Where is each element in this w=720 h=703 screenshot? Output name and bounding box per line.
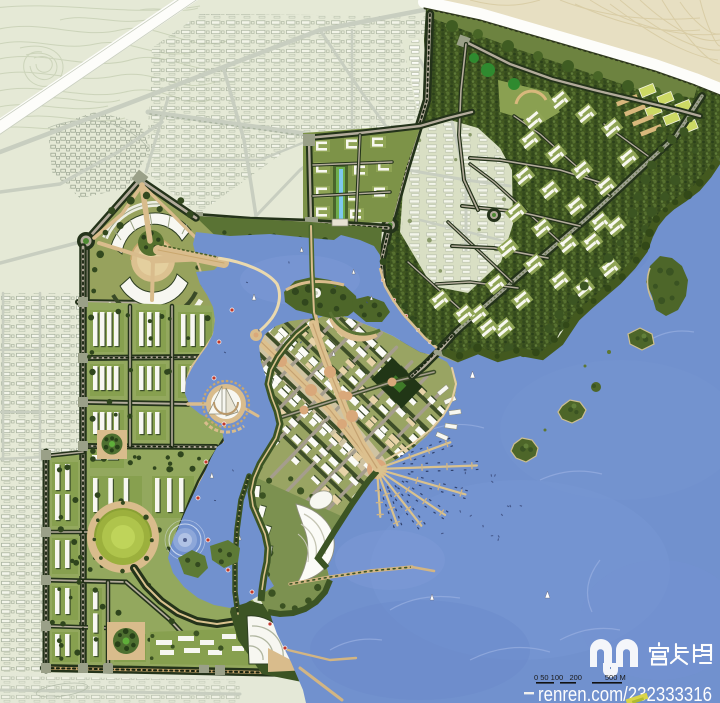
svg-text:renren.com/232333316: renren.com/232333316 <box>538 684 712 703</box>
svg-text:0 50 100 200 500 M: 0 50 100 200 500 M <box>534 673 626 682</box>
